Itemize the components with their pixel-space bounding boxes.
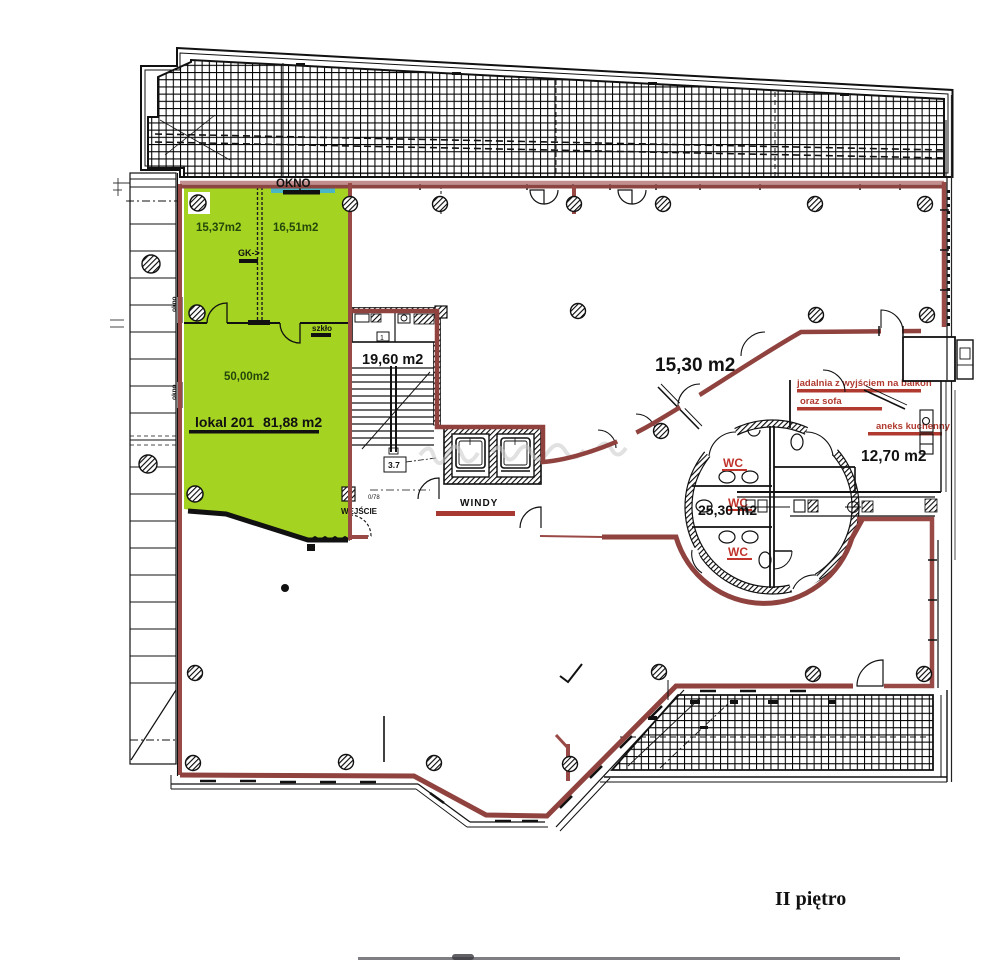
svg-text:19,60 m2: 19,60 m2 [362,352,423,368]
svg-text:50,00m2: 50,00m2 [224,371,269,383]
svg-text:lokal 201: lokal 201 [195,414,254,430]
svg-text:12,70 m2: 12,70 m2 [861,448,927,465]
svg-text:15,30 m2: 15,30 m2 [655,355,735,376]
svg-text:szkło: szkło [312,324,332,333]
svg-text:0/78: 0/78 [368,495,380,501]
svg-text:aneks kuchenny: aneks kuchenny [876,421,951,432]
svg-text:WC: WC [723,456,743,470]
svg-text:II piętro: II piętro [775,888,846,910]
svg-text:16,51m2: 16,51m2 [273,222,318,234]
svg-text:25,30 m2: 25,30 m2 [698,502,757,518]
svg-text:15,37m2: 15,37m2 [196,222,241,234]
svg-text:WEJŚCIE: WEJŚCIE [341,507,378,516]
svg-text:WINDY: WINDY [460,498,498,509]
svg-text:81,88 m2: 81,88 m2 [263,414,322,430]
svg-text:OKNO: OKNO [276,178,311,190]
svg-text:oraz sofa: oraz sofa [800,396,842,407]
svg-text:1: 1 [380,335,384,342]
svg-text:okno: okno [171,384,178,400]
svg-text:3.7: 3.7 [388,460,400,470]
svg-text:GK->: GK-> [238,248,260,258]
svg-text:WC: WC [728,545,748,559]
svg-text:okno: okno [171,296,178,312]
